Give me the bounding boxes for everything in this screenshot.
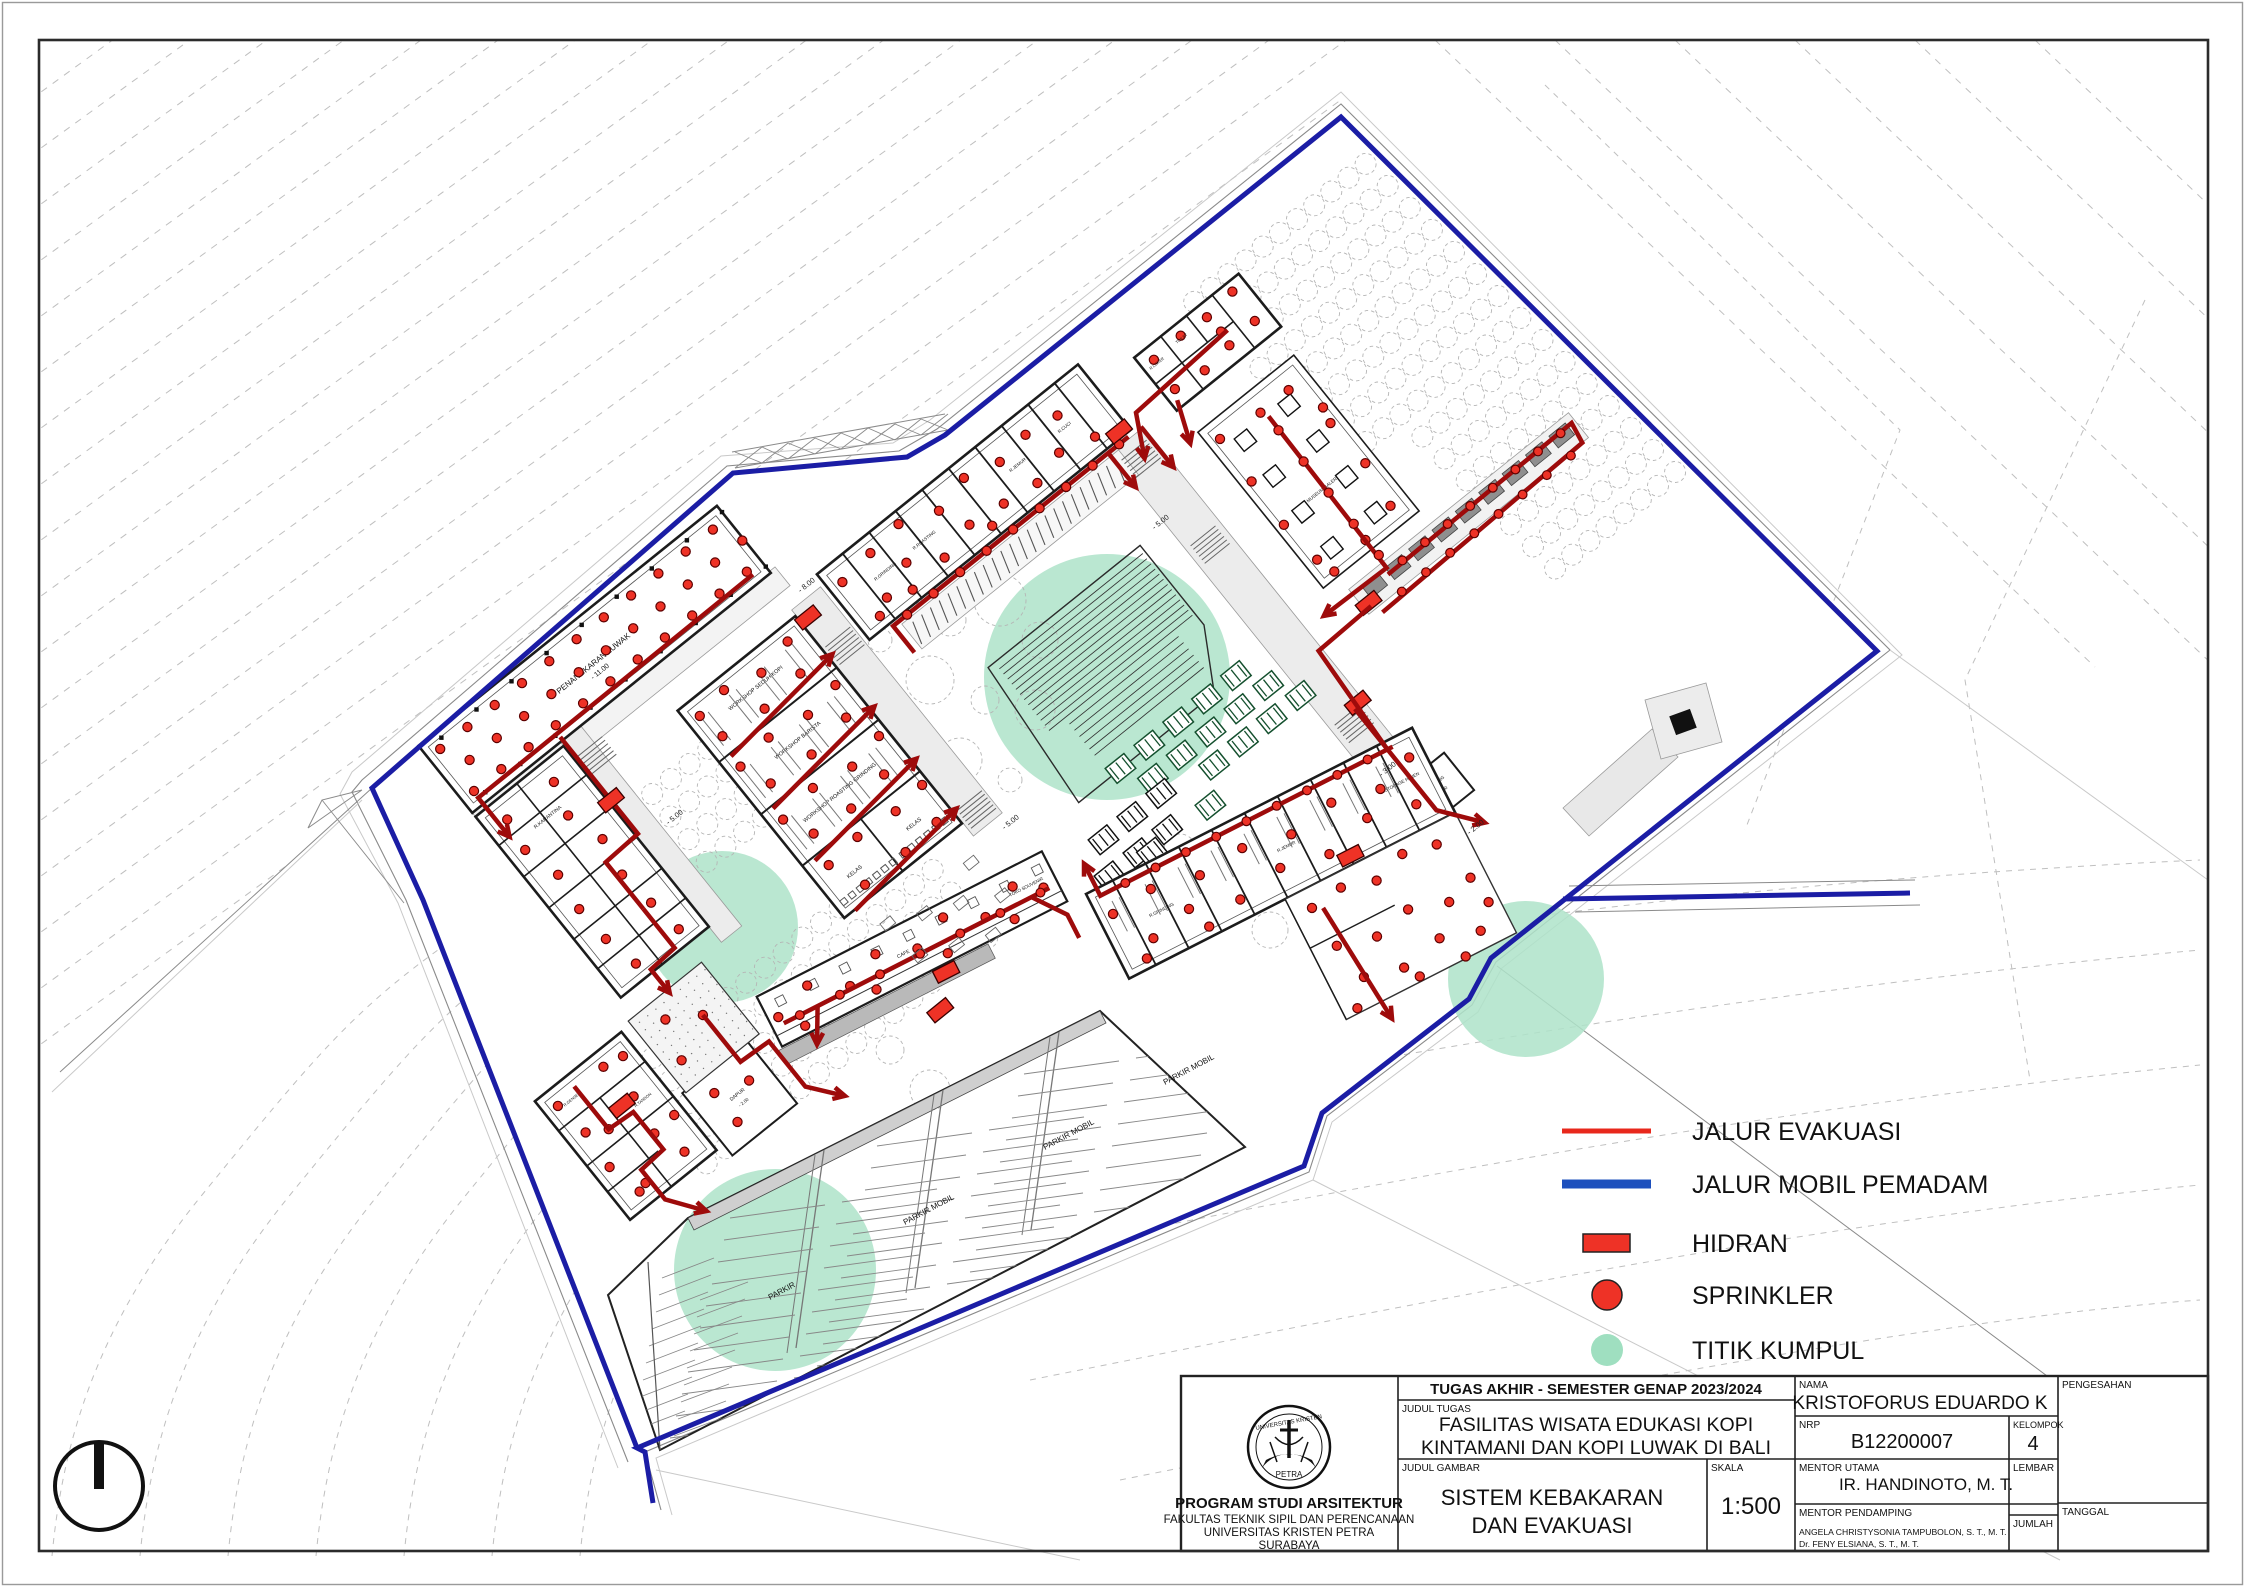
- svg-text:MENTOR UTAMA: MENTOR UTAMA: [1799, 1463, 1880, 1474]
- svg-text:4: 4: [2027, 1433, 2038, 1455]
- svg-text:KRISTOFORUS EDUARDO K: KRISTOFORUS EDUARDO K: [1792, 1393, 2047, 1414]
- svg-text:JALUR EVAKUASI: JALUR EVAKUASI: [1692, 1118, 1901, 1146]
- svg-text:PETRA: PETRA: [1276, 1470, 1303, 1479]
- svg-text:DAN EVAKUASI: DAN EVAKUASI: [1472, 1513, 1633, 1538]
- svg-text:KELOMPOK: KELOMPOK: [2013, 1420, 2064, 1430]
- svg-text:FAKULTAS TEKNIK SIPIL DAN PERE: FAKULTAS TEKNIK SIPIL DAN PERENCANAAN: [1164, 1514, 1415, 1526]
- svg-text:NAMA: NAMA: [1799, 1380, 1828, 1391]
- svg-text:PROGRAM STUDI ARSITEKTUR: PROGRAM STUDI ARSITEKTUR: [1175, 1495, 1403, 1512]
- svg-text:PENGESAHAN: PENGESAHAN: [2062, 1380, 2131, 1391]
- svg-text:FASILITAS WISATA EDUKASI KOPI: FASILITAS WISATA EDUKASI KOPI: [1439, 1414, 1753, 1436]
- svg-text:SKALA: SKALA: [1711, 1463, 1744, 1474]
- svg-text:TITIK KUMPUL: TITIK KUMPUL: [1692, 1337, 1864, 1365]
- svg-text:MENTOR PENDAMPING: MENTOR PENDAMPING: [1799, 1508, 1912, 1519]
- svg-text:TANGGAL: TANGGAL: [2062, 1507, 2109, 1518]
- svg-text:SISTEM KEBAKARAN: SISTEM KEBAKARAN: [1441, 1485, 1664, 1510]
- svg-text:SPRINKLER: SPRINKLER: [1692, 1282, 1834, 1310]
- svg-text:Dr. FENY ELSIANA, S. T., M. T.: Dr. FENY ELSIANA, S. T., M. T.: [1799, 1539, 1919, 1549]
- svg-text:ANGELA CHRISTYSONIA TAMPUBOLON: ANGELA CHRISTYSONIA TAMPUBOLON, S. T., M…: [1799, 1527, 2007, 1537]
- svg-text:JUMLAH: JUMLAH: [2013, 1519, 2053, 1530]
- svg-text:LEMBAR: LEMBAR: [2013, 1463, 2054, 1474]
- svg-text:TUGAS AKHIR - SEMESTER GENAP 2: TUGAS AKHIR - SEMESTER GENAP 2023/2024: [1430, 1381, 1762, 1398]
- svg-text:HIDRAN: HIDRAN: [1692, 1230, 1788, 1258]
- svg-text:NRP: NRP: [1799, 1420, 1820, 1431]
- svg-text:IR. HANDINOTO, M. T.: IR. HANDINOTO, M. T.: [1839, 1475, 2013, 1494]
- svg-text:JALUR MOBIL PEMADAM: JALUR MOBIL PEMADAM: [1692, 1171, 1988, 1199]
- svg-text:UNIVERSITAS KRISTEN PETRA: UNIVERSITAS KRISTEN PETRA: [1204, 1527, 1375, 1539]
- svg-text:JUDUL GAMBAR: JUDUL GAMBAR: [1402, 1463, 1480, 1474]
- svg-text:KINTAMANI DAN KOPI LUWAK DI BA: KINTAMANI DAN KOPI LUWAK DI BALI: [1421, 1437, 1771, 1459]
- svg-text:B12200007: B12200007: [1851, 1431, 1953, 1453]
- svg-text:1:500: 1:500: [1721, 1493, 1781, 1520]
